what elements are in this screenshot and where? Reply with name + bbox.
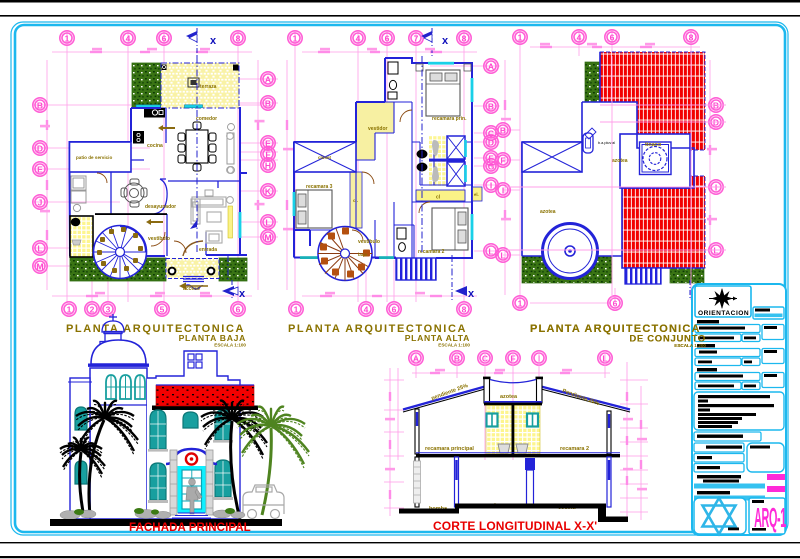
svg-text:PLANTA ALTA: PLANTA ALTA bbox=[405, 333, 470, 343]
svg-text:ORIENTACION: ORIENTACION bbox=[698, 310, 749, 317]
svg-text:8: 8 bbox=[236, 34, 241, 44]
svg-text:E: E bbox=[37, 165, 43, 175]
svg-text:H: H bbox=[265, 161, 271, 171]
svg-text:azotea: azotea bbox=[612, 158, 628, 164]
svg-text:desayunador: desayunador bbox=[145, 204, 176, 210]
svg-text:K: K bbox=[265, 187, 272, 197]
svg-text:3: 3 bbox=[106, 305, 111, 315]
svg-text:closet: closet bbox=[318, 155, 332, 160]
svg-text:6: 6 bbox=[392, 305, 397, 315]
svg-text:E: E bbox=[265, 139, 271, 149]
svg-text:B: B bbox=[500, 126, 506, 136]
svg-text:CORTE LONGITUDINAL X-X': CORTE LONGITUDINAL X-X' bbox=[433, 519, 597, 533]
svg-text:ESCALA 1:200: ESCALA 1:200 bbox=[674, 343, 706, 348]
svg-text:azotea: azotea bbox=[540, 209, 556, 215]
svg-text:vestibulo: vestibulo bbox=[358, 239, 380, 245]
svg-text:I: I bbox=[502, 186, 504, 196]
svg-text:4: 4 bbox=[577, 33, 582, 43]
svg-text:B: B bbox=[265, 99, 271, 109]
svg-text:D: D bbox=[37, 144, 43, 154]
svg-text:FACHADA PRINCIPAL: FACHADA PRINCIPAL bbox=[129, 522, 251, 534]
svg-text:6: 6 bbox=[613, 299, 618, 309]
svg-text:recamara 2: recamara 2 bbox=[560, 446, 589, 452]
svg-text:1: 1 bbox=[65, 34, 70, 44]
svg-text:1: 1 bbox=[518, 33, 523, 43]
svg-text:1: 1 bbox=[294, 305, 299, 315]
svg-text:D: D bbox=[488, 138, 494, 148]
svg-text:B: B bbox=[37, 101, 43, 111]
svg-text:6: 6 bbox=[610, 33, 615, 43]
svg-text:recamara prin.: recamara prin. bbox=[432, 116, 467, 122]
svg-text:recamara principal: recamara principal bbox=[425, 446, 474, 452]
svg-text:8: 8 bbox=[689, 33, 694, 43]
svg-text:L: L bbox=[500, 251, 505, 261]
svg-text:terraza: terraza bbox=[200, 84, 217, 90]
svg-text:A: A bbox=[488, 62, 494, 72]
svg-text:patio de servicio: patio de servicio bbox=[76, 155, 112, 160]
svg-text:1: 1 bbox=[293, 34, 298, 44]
svg-text:4: 4 bbox=[356, 34, 361, 44]
svg-text:x: x bbox=[210, 35, 217, 47]
svg-text:L: L bbox=[37, 244, 42, 254]
svg-text:PLANTA BAJA: PLANTA BAJA bbox=[179, 333, 246, 343]
svg-text:entrada: entrada bbox=[199, 247, 217, 253]
svg-text:F: F bbox=[500, 156, 505, 166]
svg-text:M: M bbox=[264, 233, 271, 243]
svg-text:comedor: comedor bbox=[196, 116, 217, 122]
svg-text:ESCALA 1:100: ESCALA 1:100 bbox=[438, 343, 470, 348]
svg-text:tinaco: tinaco bbox=[645, 142, 662, 148]
svg-text:L: L bbox=[713, 246, 718, 256]
svg-text:G: G bbox=[488, 162, 495, 172]
svg-text:5: 5 bbox=[160, 305, 165, 315]
svg-text:b.a.pluvial: b.a.pluvial bbox=[598, 141, 615, 145]
svg-text:azotea: azotea bbox=[500, 394, 518, 400]
svg-text:cl: cl bbox=[436, 195, 441, 201]
svg-text:M: M bbox=[36, 262, 43, 272]
svg-text:vestidor: vestidor bbox=[368, 126, 388, 132]
svg-text:1: 1 bbox=[518, 299, 523, 309]
svg-text:I: I bbox=[715, 183, 717, 193]
svg-text:B: B bbox=[713, 101, 719, 111]
svg-text:cocina: cocina bbox=[147, 143, 163, 149]
svg-text:x: x bbox=[442, 35, 449, 47]
svg-text:6: 6 bbox=[236, 305, 241, 315]
svg-text:el.: el. bbox=[474, 192, 479, 197]
svg-text:6: 6 bbox=[162, 34, 167, 44]
svg-text:A: A bbox=[265, 75, 271, 85]
svg-text:L: L bbox=[265, 218, 270, 228]
svg-text:F: F bbox=[265, 150, 270, 160]
svg-text:6: 6 bbox=[385, 34, 390, 44]
svg-text:1: 1 bbox=[67, 305, 72, 315]
svg-text:4: 4 bbox=[364, 305, 369, 315]
svg-text:baja: baja bbox=[358, 252, 368, 257]
svg-text:8: 8 bbox=[462, 34, 467, 44]
svg-text:7: 7 bbox=[414, 34, 419, 44]
svg-text:2: 2 bbox=[90, 305, 95, 315]
svg-text:x: x bbox=[468, 288, 475, 300]
svg-text:I: I bbox=[490, 181, 492, 191]
svg-text:B: B bbox=[488, 102, 494, 112]
svg-text:ESCALA 1:100: ESCALA 1:100 bbox=[214, 343, 246, 348]
svg-text:8: 8 bbox=[462, 305, 467, 315]
svg-text:L: L bbox=[488, 247, 493, 257]
svg-text:x: x bbox=[239, 288, 246, 300]
svg-text:recamara 3: recamara 3 bbox=[306, 184, 333, 190]
svg-text:vestibulo: vestibulo bbox=[148, 236, 170, 242]
svg-text:J: J bbox=[38, 198, 43, 208]
svg-text:D: D bbox=[713, 118, 719, 128]
svg-text:4: 4 bbox=[126, 34, 131, 44]
